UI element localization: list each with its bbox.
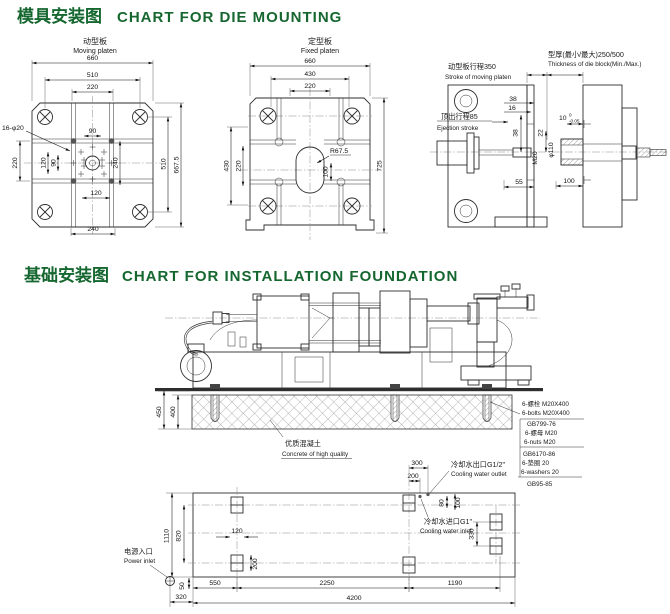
dim-430-top: 430: [304, 71, 316, 78]
dim-10: 10: [559, 115, 567, 122]
dim-1190: 1190: [448, 580, 463, 587]
foundation-plan: 120 200 1110 820 电源入口 Power inlet 300 20…: [124, 460, 520, 607]
bom-line-5: GB6170-86: [523, 451, 556, 458]
dim-220-top: 220: [87, 84, 99, 91]
stroke-note-en: Stroke of moving platen: [445, 74, 512, 81]
dim-400: 400: [170, 406, 177, 418]
dim-90-top: 90: [89, 128, 97, 135]
dim-120-left: 120: [41, 157, 48, 169]
dim-16: 16: [508, 105, 516, 112]
dim-22: 22: [538, 129, 545, 137]
tol-hi: 0: [569, 113, 572, 118]
dim-667: 667.5: [174, 156, 181, 173]
dia-note: φ110: [548, 142, 555, 157]
bom-line-8: GB95-85: [527, 481, 553, 488]
radius-note: R67.5: [330, 148, 348, 155]
section2-title: 基础安装图 CHART FOR INSTALLATION FOUNDATION: [23, 265, 458, 285]
fixed-platen-label-zh: 定型板: [308, 36, 332, 46]
moving-platen-label-en: Moving platen: [73, 48, 117, 55]
bom-line-4: 6-nuts M20: [524, 439, 556, 446]
bom-line-0: 6-螺栓 M20X400: [522, 399, 569, 408]
dim-660: 660: [87, 55, 99, 62]
section2-title-en: CHART FOR INSTALLATION FOUNDATION: [122, 268, 458, 285]
foundation-section: 450 400 优质混凝土 Concrete of high quality 6…: [156, 384, 584, 488]
dim-510-top: 510: [87, 72, 99, 79]
dim-1110: 1110: [164, 529, 171, 543]
thickness-note-zh: 型厚(最小/最大)250/500: [548, 50, 624, 59]
concrete-note-zh: 优质混凝土: [285, 439, 321, 448]
fixed-platen-dims: 660 430 220 430 220 725 R67.5 100: [224, 58, 389, 233]
bom-line-2: GB799-76: [527, 421, 556, 428]
dim-820: 820: [176, 530, 183, 542]
dim-220-left: 220: [12, 157, 19, 169]
dim-55: 55: [515, 179, 523, 186]
moving-platen-label-zh: 动型板: [83, 36, 107, 46]
stroke-note-zh: 动型板行程350: [448, 62, 496, 71]
manual-page: 模具安装图 CHART FOR DIE MOUNTING 动型板 Moving …: [0, 0, 670, 614]
thread-note: M20: [532, 151, 539, 164]
inlet-en: Cooling water inlet: [420, 528, 472, 535]
dim-100: 100: [455, 497, 462, 509]
moving-platen-dims: 660 510 220 90 220 120 90 240 510 667.5: [2, 55, 184, 236]
inlet-zh: 冷却水进口G1": [424, 517, 473, 526]
bom-line-1: 6-bolts M20X400: [522, 410, 570, 417]
dim-220-left: 220: [236, 160, 243, 172]
bom-line-6: 6-垫圈 20: [522, 458, 549, 467]
section1-title-zh: 模具安装图: [17, 6, 102, 26]
dim-38b: 38: [513, 129, 520, 137]
dim-90-left: 90: [51, 159, 58, 167]
dim-120: 120: [231, 528, 243, 535]
dim-320: 320: [175, 594, 187, 601]
thickness-note-en: Thickness of die block(Min./Max.): [548, 61, 641, 68]
section1-title-en: CHART FOR DIE MOUNTING: [117, 9, 342, 26]
plan-outline: [193, 493, 515, 577]
dim-450: 450: [156, 406, 163, 418]
concrete-note-en: Concrete of high quality: [282, 451, 349, 458]
dim-100: 100: [563, 178, 575, 185]
dim-240-bottom: 240: [87, 226, 99, 233]
side-view-annotations: 动型板行程350 Stroke of moving platen 型厚(最小/最…: [437, 50, 641, 190]
dim-550: 550: [209, 580, 221, 587]
fixed-platen-label-en: Fixed platen: [301, 48, 339, 55]
holes-note: 16-φ20: [2, 125, 24, 132]
dim-2250: 2250: [319, 580, 334, 587]
section2-title-zh: 基础安装图: [23, 265, 109, 285]
ejection-note-zh: 顶出行程85: [441, 112, 478, 121]
dim-120-bottom: 120: [90, 190, 102, 197]
dim-200-top: 200: [407, 473, 419, 480]
machine-elevation: [155, 284, 543, 391]
dim-38a: 38: [509, 96, 517, 103]
dim-300: 300: [411, 460, 423, 467]
fixed-platen-drawing: 定型板 Fixed platen 660: [224, 36, 389, 240]
dim-430-left: 430: [224, 160, 231, 172]
dim-100: 100: [323, 166, 330, 178]
dim-725: 725: [377, 160, 384, 172]
tol-lo: -0.05: [569, 119, 580, 124]
dim-50: 50: [179, 582, 186, 590]
dim-200-pad: 200: [252, 558, 259, 570]
bom-line-3: 6-螺母 M20: [525, 428, 558, 437]
outlet-zh: 冷却水出口G1/2": [451, 460, 506, 469]
dim-80: 80: [439, 499, 446, 507]
dim-240-right: 240: [113, 157, 120, 169]
dim-220-top: 220: [304, 83, 316, 90]
bom-line-7: 6-washers 20: [521, 469, 559, 476]
power-inlet-zh: 电源入口: [124, 547, 153, 556]
dim-660: 660: [304, 58, 316, 65]
outlet-en: Cooling water outlet: [451, 471, 507, 478]
dim-510-right: 510: [161, 158, 168, 170]
moving-platen-drawing: 动型板 Moving platen: [2, 36, 184, 236]
section1-title: 模具安装图 CHART FOR DIE MOUNTING: [17, 6, 342, 26]
ejection-note-en: Ejection stroke: [437, 125, 479, 132]
dim-4200: 4200: [346, 595, 361, 602]
die-space-side-view: 动型板行程350 Stroke of moving platen 型厚(最小/最…: [430, 50, 668, 227]
dim-330: 330: [469, 528, 476, 540]
power-inlet-en: Power inlet: [124, 558, 155, 565]
concrete-slab: [192, 395, 512, 429]
